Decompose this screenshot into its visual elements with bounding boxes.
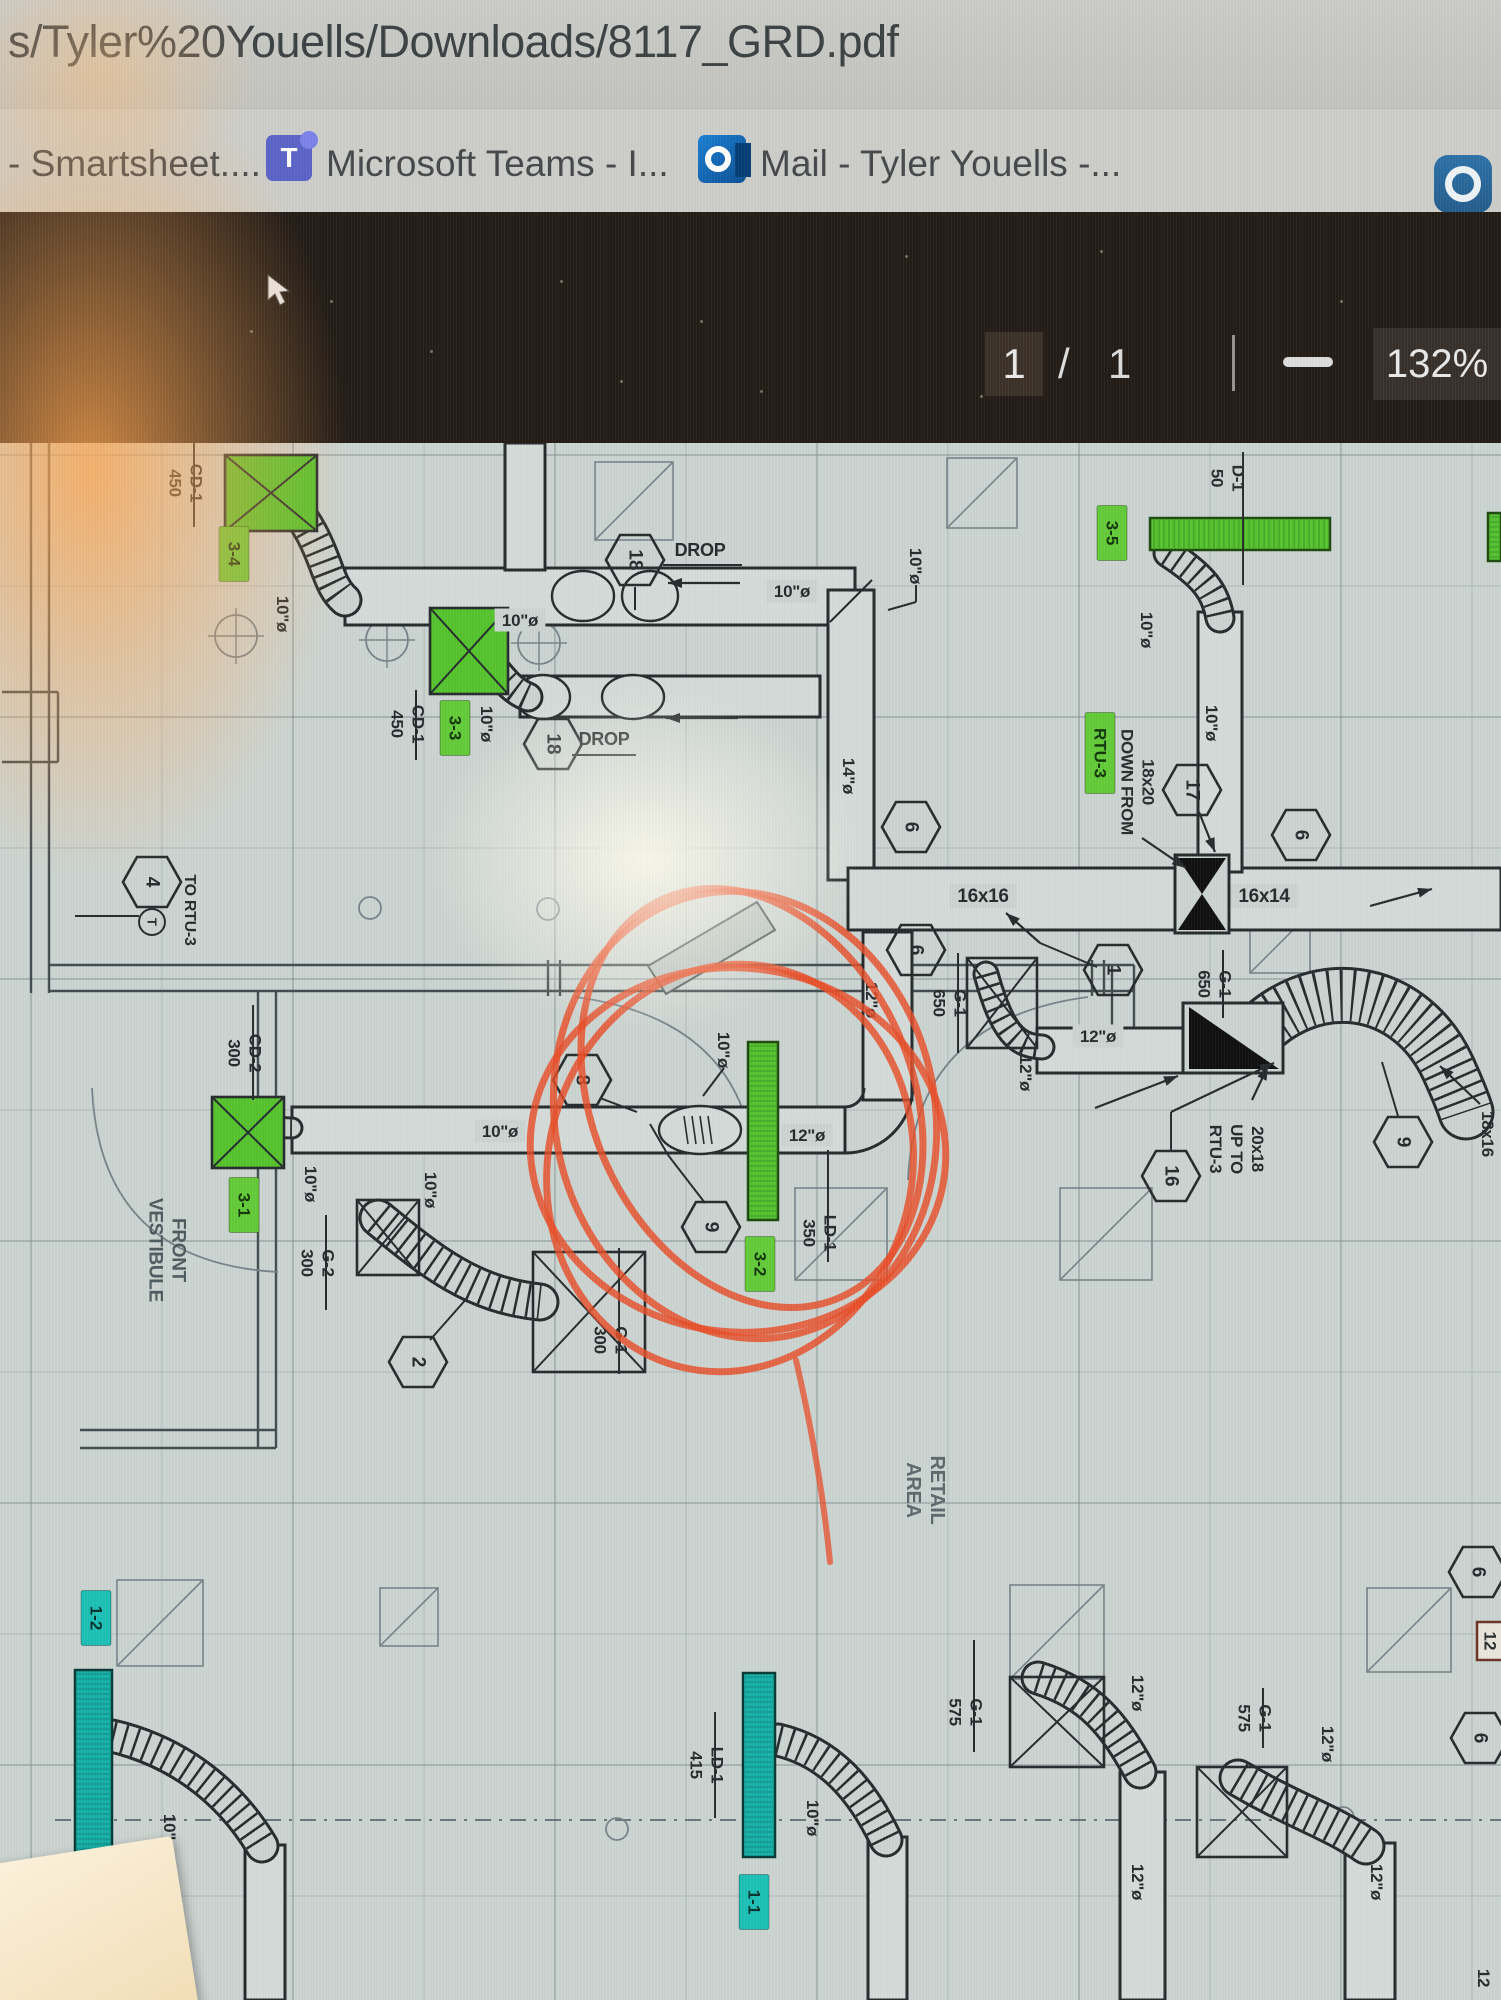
pdf-toolbar: 1 / 1 132% xyxy=(0,212,1501,443)
dust-speck xyxy=(760,390,763,393)
boxed-label: 12 xyxy=(1477,1622,1501,1660)
plan-label: 10"ø xyxy=(478,706,497,743)
plan-label: RETAILAREA xyxy=(902,1456,948,1525)
plan-label: 10"ø xyxy=(274,596,293,633)
zoom-level[interactable]: 132% xyxy=(1373,328,1501,400)
plan-label: 14"ø xyxy=(840,758,859,795)
svg-text:18: 18 xyxy=(543,733,564,754)
photographed-screen: s/Tyler%20Youells/Downloads/8117_GRD.pdf… xyxy=(0,0,1501,2000)
svg-text:3-2: 3-2 xyxy=(751,1252,770,1277)
plan-label: CD-2300 xyxy=(225,1034,265,1072)
plan-label: 12"ø xyxy=(1017,1055,1036,1092)
bookmark-teams[interactable]: Microsoft Teams - I... xyxy=(326,143,669,185)
dust-speck xyxy=(560,280,563,283)
svg-text:3-4: 3-4 xyxy=(225,542,244,567)
svg-text:6: 6 xyxy=(1470,1733,1491,1744)
plan-label: G-1575 xyxy=(1235,1704,1275,1731)
dust-speck xyxy=(700,320,703,323)
plan-label: 10"ø xyxy=(1138,612,1157,649)
svg-text:3-1: 3-1 xyxy=(235,1193,254,1218)
svg-text:9: 9 xyxy=(1393,1137,1414,1148)
bookmark-smartsheet[interactable]: - Smartsheet.... xyxy=(8,143,261,185)
plan-label: 10"ø xyxy=(422,1172,441,1209)
plan-label: 12"ø xyxy=(1319,1726,1338,1763)
plan-label: G-2300 xyxy=(298,1249,338,1276)
plan-label: 10"ø xyxy=(715,1032,734,1069)
plan-label: G-1650 xyxy=(930,989,970,1016)
svg-text:12: 12 xyxy=(1481,1632,1500,1651)
plan-label: 12"ø xyxy=(1080,1027,1117,1046)
plan-label: 10"ø xyxy=(502,611,539,630)
plan-label: CD-1450 xyxy=(388,705,428,743)
url-text[interactable]: s/Tyler%20Youells/Downloads/8117_GRD.pdf xyxy=(8,16,899,68)
app-ring-icon[interactable] xyxy=(1434,155,1492,213)
diffusers xyxy=(75,455,1501,1857)
svg-text:1-2: 1-2 xyxy=(87,1606,106,1631)
svg-text:9: 9 xyxy=(701,1222,722,1233)
plan-label: CD-1450 xyxy=(166,464,206,502)
plan-label: 16x14 xyxy=(1238,886,1290,907)
plan-label: 12 xyxy=(1475,1969,1494,1987)
svg-text:4: 4 xyxy=(142,877,163,888)
page-number-input[interactable]: 1 xyxy=(985,332,1043,396)
svg-text:17: 17 xyxy=(1182,779,1203,800)
dust-speck xyxy=(430,350,433,353)
svg-text:3-5: 3-5 xyxy=(1103,521,1122,546)
thermostat-symbol: T xyxy=(139,909,165,935)
plan-label: LD-1350 xyxy=(800,1215,840,1252)
dust-speck xyxy=(1340,300,1343,303)
plan-label: 10"ø xyxy=(302,1166,321,1203)
plan-label: G-1650 xyxy=(1195,970,1235,997)
svg-text:3-3: 3-3 xyxy=(446,716,465,741)
svg-text:2: 2 xyxy=(408,1357,429,1368)
pdf-page-canvas[interactable]: 18181766611694892663-43-33-5RTU-33-13-21… xyxy=(0,443,1501,2000)
plan-label: TO RTU-3 xyxy=(182,874,199,945)
dust-speck xyxy=(330,300,333,303)
dust-speck xyxy=(905,255,908,258)
bookmarks-bar: - Smartsheet.... Microsoft Teams - I... … xyxy=(0,108,1501,213)
browser-url-bar[interactable]: s/Tyler%20Youells/Downloads/8117_GRD.pdf xyxy=(0,0,1501,108)
svg-text:6: 6 xyxy=(906,945,927,956)
plan-label: 10"ø xyxy=(161,1814,180,1851)
page-total: 1 xyxy=(1108,332,1131,396)
svg-text:RTU-3: RTU-3 xyxy=(1091,728,1110,778)
zoom-out-button[interactable] xyxy=(1283,357,1333,367)
dust-speck xyxy=(620,380,623,383)
plan-label: 12"ø xyxy=(1368,1864,1387,1901)
plan-label: 12"ø xyxy=(789,1126,826,1145)
plan-label: 10"ø xyxy=(804,1800,823,1837)
svg-text:16: 16 xyxy=(1161,1165,1182,1186)
svg-text:6: 6 xyxy=(1468,1567,1489,1578)
page-separator: / xyxy=(1058,332,1070,396)
dust-speck xyxy=(1100,250,1103,253)
plan-label: FRONTVESTIBULE xyxy=(145,1198,189,1302)
toolbar-divider xyxy=(1232,335,1235,391)
plan-label: 10"ø xyxy=(1203,705,1222,742)
plan-label: G-1575 xyxy=(946,1698,986,1725)
mouse-cursor xyxy=(266,274,292,308)
svg-text:6: 6 xyxy=(1291,830,1312,841)
plan-label: 12"ø xyxy=(1129,1675,1148,1712)
plan-label: 10"ø xyxy=(482,1122,519,1141)
svg-text:1: 1 xyxy=(1103,965,1124,976)
plan-label: 10"ø xyxy=(774,582,811,601)
plan-label: 20x18UP TORTU-3 xyxy=(1207,1124,1268,1174)
outlook-icon xyxy=(698,135,746,183)
teams-icon xyxy=(266,135,312,181)
duct-plan-drawing: 18181766611694892663-43-33-5RTU-33-13-21… xyxy=(0,443,1501,2000)
plan-label: DROP xyxy=(579,729,630,749)
plan-label: D-150 xyxy=(1208,465,1248,492)
plan-label: 16x16 xyxy=(957,886,1008,907)
dust-speck xyxy=(980,395,983,398)
svg-text:6: 6 xyxy=(901,822,922,833)
bookmark-mail[interactable]: Mail - Tyler Youells -... xyxy=(760,143,1121,185)
plan-label: 10"ø xyxy=(907,548,926,585)
plan-label: 12"ø xyxy=(1129,1864,1148,1901)
svg-text:1-1: 1-1 xyxy=(745,1890,764,1915)
plan-label: 18x16 xyxy=(1479,1111,1498,1157)
dust-speck xyxy=(250,330,253,333)
svg-text:T: T xyxy=(145,918,160,926)
plan-label: 18x20DOWN FROM xyxy=(1118,729,1158,835)
plan-label: DROP xyxy=(675,540,726,560)
svg-text:18: 18 xyxy=(625,549,646,570)
